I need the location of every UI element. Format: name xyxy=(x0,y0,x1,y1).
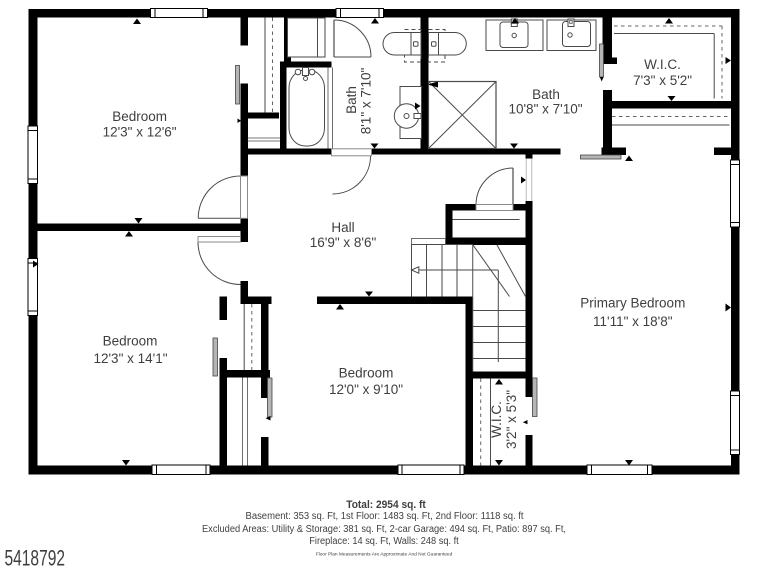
svg-text:Primary Bedroom: Primary Bedroom xyxy=(580,296,685,311)
svg-text:Basement: 353 sq. Ft, 1st Floo: Basement: 353 sq. Ft, 1st Floor: 1483 sq… xyxy=(246,511,524,522)
svg-text:Excluded Areas: Utility & Stor: Excluded Areas: Utility & Storage: 381 s… xyxy=(202,524,566,535)
svg-text:7'3" x 5'2": 7'3" x 5'2" xyxy=(633,73,692,88)
svg-text:W.I.C.: W.I.C. xyxy=(644,57,681,72)
svg-text:12'3" x 12'6": 12'3" x 12'6" xyxy=(103,125,177,140)
svg-text:11'11" x 18'8": 11'11" x 18'8" xyxy=(593,314,673,329)
svg-text:W.I.C.: W.I.C. xyxy=(489,401,504,438)
svg-text:12'0" x 9'10": 12'0" x 9'10" xyxy=(329,382,403,397)
svg-text:Bedroom: Bedroom xyxy=(339,366,394,381)
svg-text:Total: 2954 sq. ft: Total: 2954 sq. ft xyxy=(346,499,426,511)
svg-text:Bedroom: Bedroom xyxy=(112,109,167,124)
svg-text:5418792: 5418792 xyxy=(5,546,66,568)
svg-text:Fireplace: 14 sq. Ft, Walls: 2: Fireplace: 14 sq. Ft, Walls: 248 sq. ft xyxy=(309,536,459,547)
svg-text:3'2" x 5'3": 3'2" x 5'3" xyxy=(504,390,519,449)
svg-text:12'3" x 14'1": 12'3" x 14'1" xyxy=(93,351,167,366)
svg-text:Hall: Hall xyxy=(331,220,354,235)
svg-text:Floor Plan Measurements Are Ap: Floor Plan Measurements Are Approximate … xyxy=(316,552,453,558)
svg-text:10'8" x 7'10": 10'8" x 7'10" xyxy=(508,102,582,117)
svg-text:Bath: Bath xyxy=(344,86,359,114)
svg-text:Bath: Bath xyxy=(532,87,560,102)
svg-text:Bedroom: Bedroom xyxy=(103,334,158,349)
svg-text:8'1" x 7'10": 8'1" x 7'10" xyxy=(359,68,374,135)
svg-text:16'9" x 8'6": 16'9" x 8'6" xyxy=(310,235,377,250)
